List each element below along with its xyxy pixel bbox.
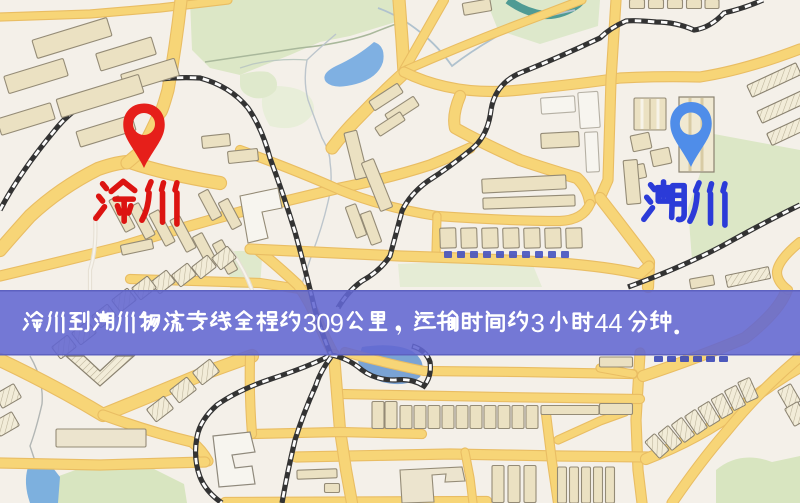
svg-text:4: 4: [594, 310, 608, 338]
svg-text:0: 0: [316, 310, 330, 338]
svg-text:3: 3: [531, 310, 545, 338]
svg-text:3: 3: [303, 310, 317, 338]
svg-text:4: 4: [608, 310, 622, 338]
svg-text:9: 9: [330, 310, 344, 338]
